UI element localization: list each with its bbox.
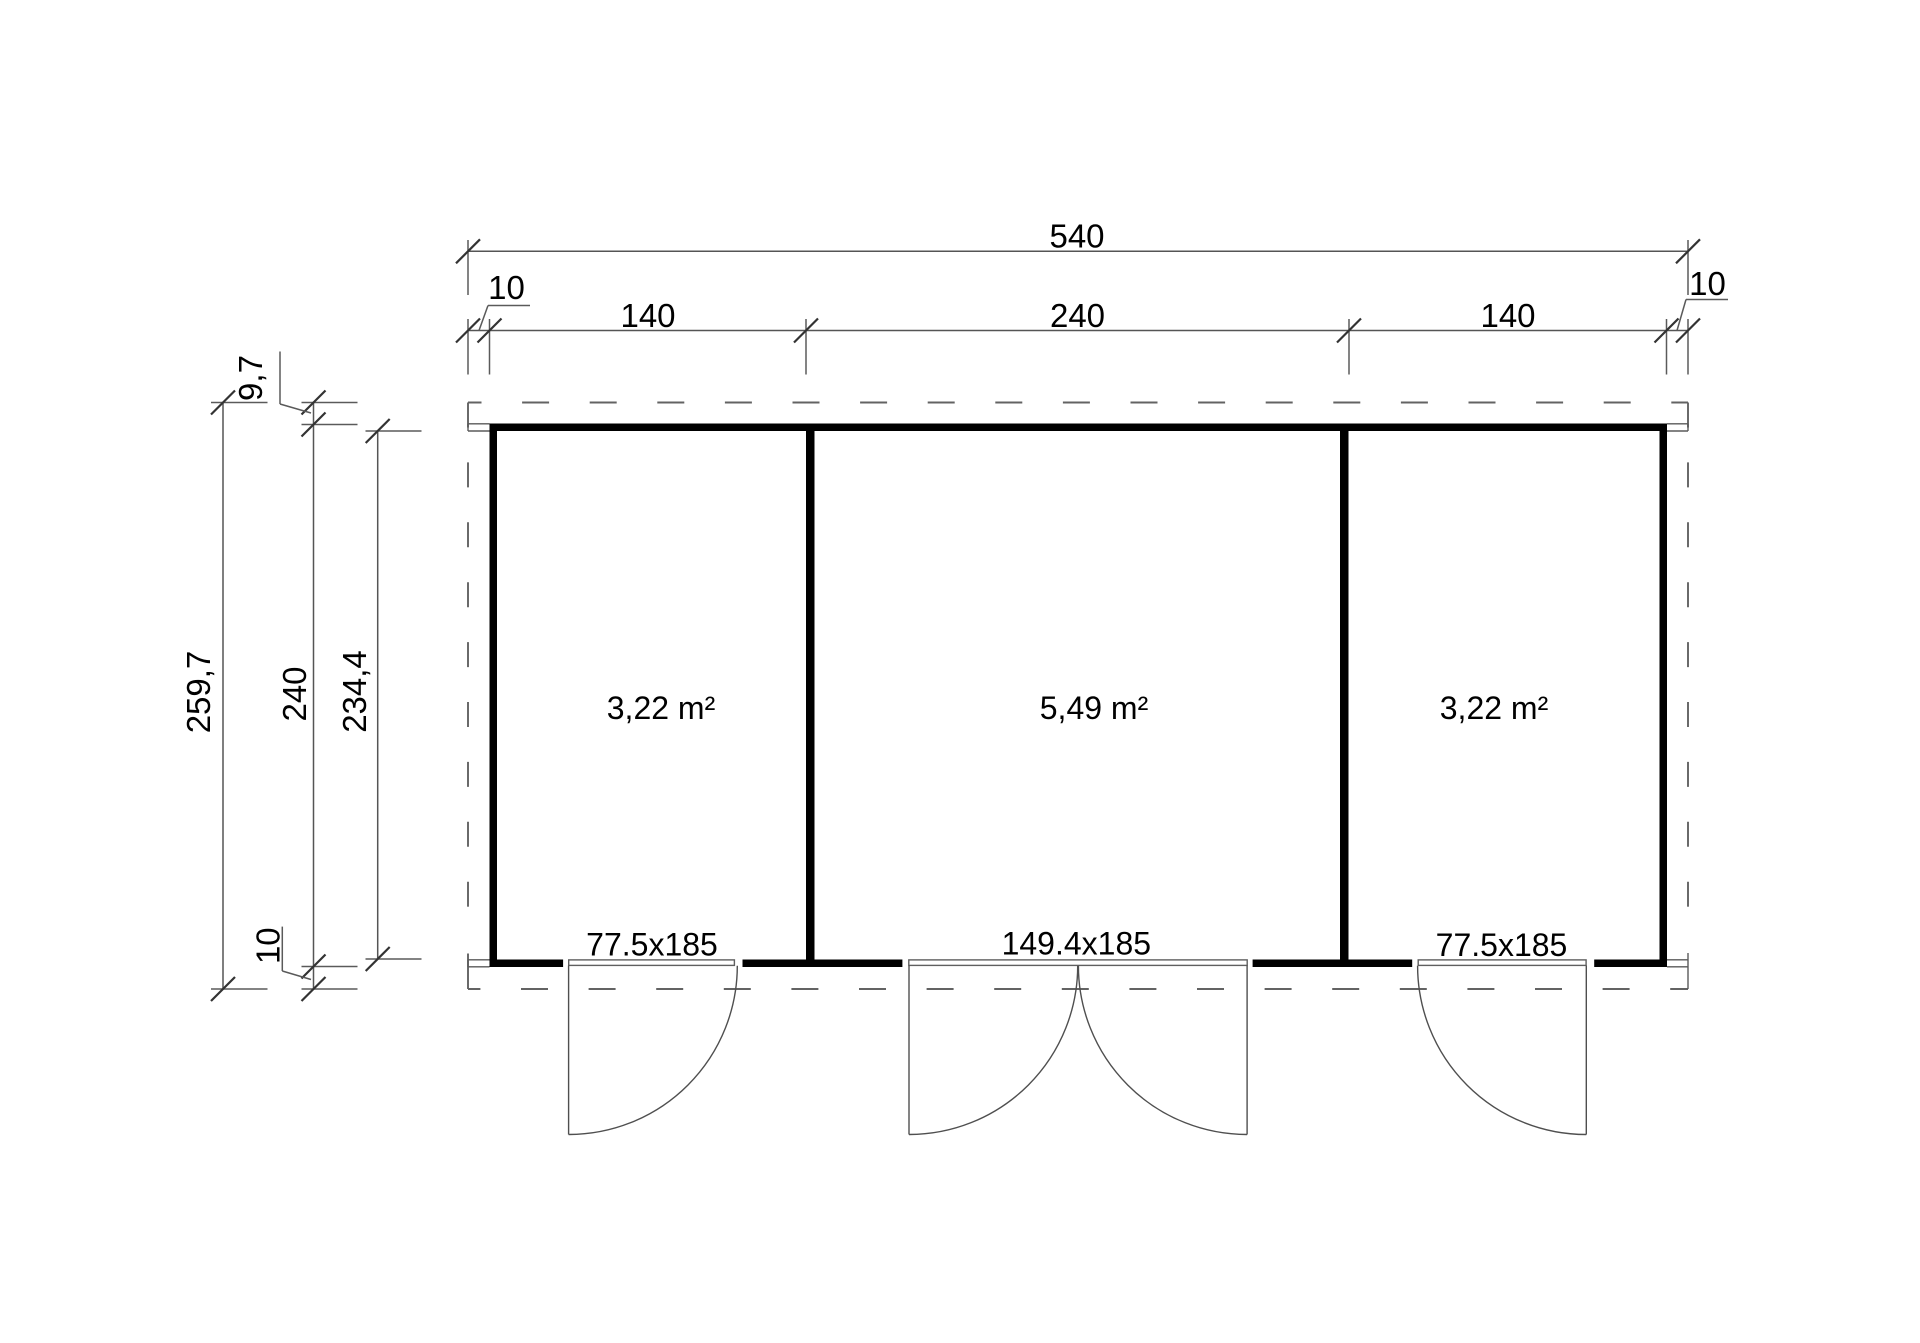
svg-text:259,7: 259,7 [180, 651, 217, 734]
svg-text:240: 240 [276, 666, 313, 721]
svg-text:77.5x185: 77.5x185 [1436, 927, 1568, 963]
svg-text:149.4x185: 149.4x185 [1002, 926, 1151, 962]
svg-text:240: 240 [1050, 297, 1105, 334]
svg-text:234,4: 234,4 [336, 650, 373, 733]
svg-text:10: 10 [250, 927, 287, 964]
svg-text:9,7: 9,7 [232, 355, 269, 401]
svg-text:5,49 m²: 5,49 m² [1040, 690, 1149, 726]
svg-text:3,22 m²: 3,22 m² [1440, 690, 1549, 726]
svg-text:3,22 m²: 3,22 m² [607, 690, 716, 726]
svg-text:140: 140 [620, 297, 675, 334]
svg-text:10: 10 [488, 269, 525, 306]
svg-text:540: 540 [1049, 218, 1104, 255]
svg-text:77.5x185: 77.5x185 [586, 927, 718, 963]
svg-text:140: 140 [1480, 297, 1535, 334]
svg-text:10: 10 [1689, 265, 1726, 302]
